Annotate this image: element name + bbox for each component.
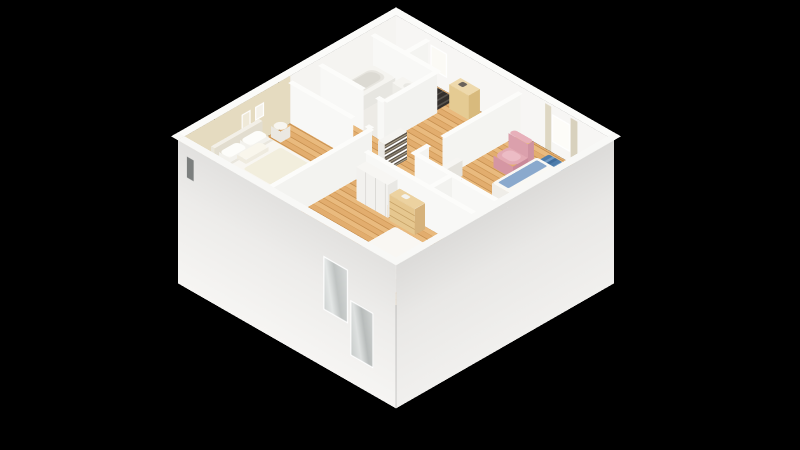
- balcony-glass-door-right: [350, 300, 373, 369]
- small-slit-window: [187, 157, 194, 182]
- curtain-left: [545, 103, 551, 152]
- floorplan-3d-view: [0, 0, 800, 450]
- balcony-glass-door-left: [323, 256, 348, 324]
- apartment-plan: [171, 55, 621, 313]
- bedroom2-window: [552, 114, 570, 152]
